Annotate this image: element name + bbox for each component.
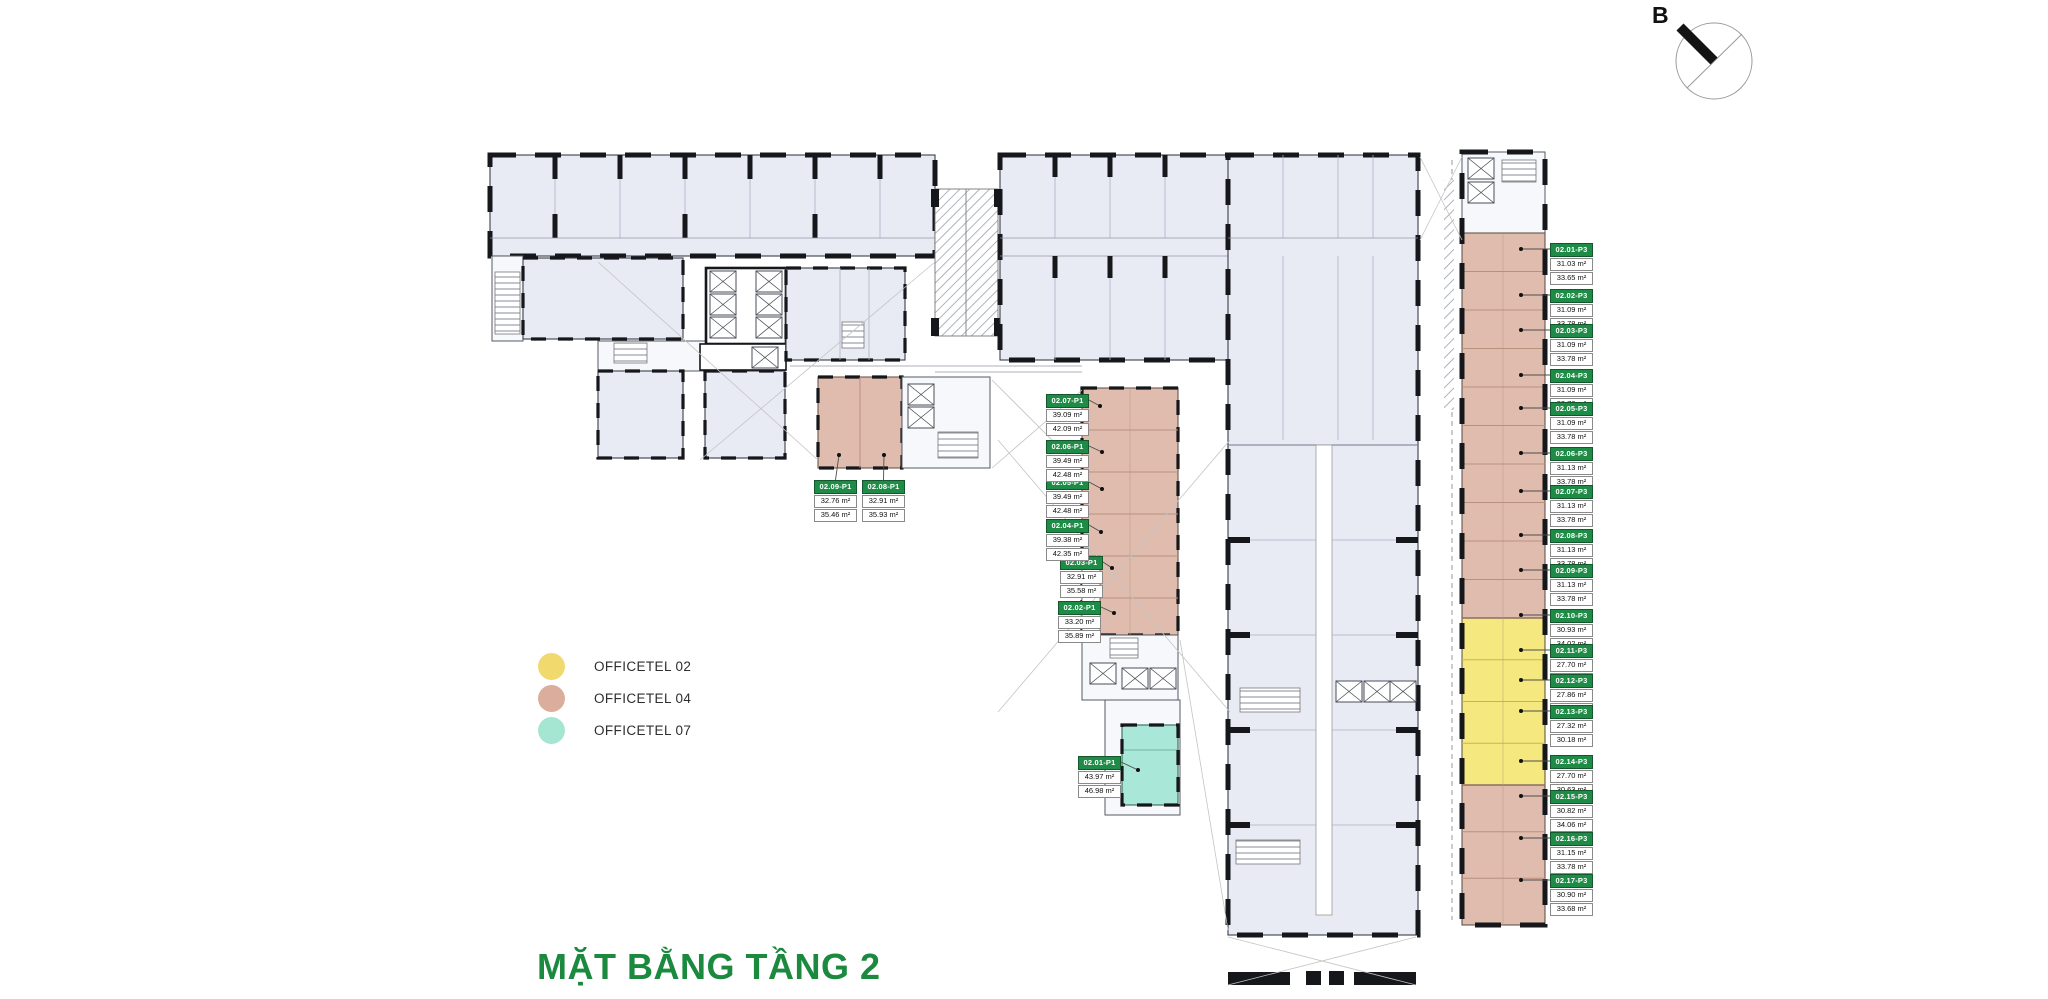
legend-color-dot <box>538 653 565 680</box>
unit-area1: 33.20 m² <box>1058 616 1101 629</box>
unit-area1: 30.93 m² <box>1550 624 1593 637</box>
unit-area1: 27.86 m² <box>1550 689 1593 702</box>
unit-area1: 39.49 m² <box>1046 455 1089 468</box>
unit-area1: 31.09 m² <box>1550 417 1593 430</box>
unit-id-badge: 02.17-P3 <box>1550 874 1593 888</box>
compass-north-label: B <box>1652 2 1669 28</box>
unit-label-02.08-P1: 02.08-P132.91 m²35.93 m² <box>862 480 905 522</box>
unit-id-badge: 02.07-P1 <box>1046 394 1089 408</box>
escalator-void <box>931 189 1002 336</box>
unit-area2: 46.98 m² <box>1078 785 1121 798</box>
unit-area2: 34.06 m² <box>1550 819 1593 832</box>
unit-id-badge: 02.04-P3 <box>1550 369 1593 383</box>
unit-area1: 32.76 m² <box>814 495 857 508</box>
unit-area2: 42.35 m² <box>1046 548 1089 561</box>
legend-color-dot <box>538 685 565 712</box>
legend-item-officetel-04: OFFICETEL 04 <box>538 685 691 712</box>
unit-id-badge: 02.09-P3 <box>1550 564 1593 578</box>
unit-label-02.17-P3: 02.17-P330.90 m²33.68 m² <box>1550 874 1593 916</box>
unit-area2: 33.78 m² <box>1550 431 1593 444</box>
unit-id-badge: 02.01-P3 <box>1550 243 1593 257</box>
unit-id-badge: 02.13-P3 <box>1550 705 1593 719</box>
unit-id-badge: 02.04-P1 <box>1046 519 1089 533</box>
unit-label-02.13-P3: 02.13-P327.32 m²30.18 m² <box>1550 705 1593 747</box>
building-mid-block <box>786 268 905 360</box>
unit-label-02.05-P1: 02.05-P139.49 m²42.48 m² <box>1046 476 1089 518</box>
building-tower <box>1228 155 1418 985</box>
unit-area1: 27.32 m² <box>1550 720 1593 733</box>
officetel-block-0809 <box>818 377 990 468</box>
unit-area1: 31.13 m² <box>1550 544 1593 557</box>
legend-color-dot <box>538 717 565 744</box>
building-upper-mid <box>1000 155 1230 360</box>
unit-area2: 33.78 m² <box>1550 593 1593 606</box>
unit-area2: 42.48 m² <box>1046 469 1089 482</box>
unit-id-badge: 02.09-P1 <box>814 480 857 494</box>
unit-area1: 30.90 m² <box>1550 889 1593 902</box>
unit-area2: 35.58 m² <box>1060 585 1103 598</box>
unit-area2: 33.68 m² <box>1550 903 1593 916</box>
unit-id-badge: 02.11-P3 <box>1550 644 1593 658</box>
legend: OFFICETEL 02OFFICETEL 04OFFICETEL 07 <box>538 653 691 744</box>
unit-label-02.07-P1: 02.07-P139.09 m²42.09 m² <box>1046 394 1089 436</box>
unit-area1: 27.70 m² <box>1550 770 1593 783</box>
unit-area1: 32.91 m² <box>862 495 905 508</box>
unit-id-badge: 02.06-P3 <box>1550 447 1593 461</box>
unit-area1: 31.15 m² <box>1550 847 1593 860</box>
legend-item-officetel-02: OFFICETEL 02 <box>538 653 691 680</box>
unit-id-badge: 02.10-P3 <box>1550 609 1593 623</box>
unit-area1: 43.97 m² <box>1078 771 1121 784</box>
unit-area2: 33.78 m² <box>1550 514 1593 527</box>
unit-label-02.09-P3: 02.09-P331.13 m²33.78 m² <box>1550 564 1593 606</box>
officetel-strip-p3 <box>1444 152 1545 925</box>
unit-label-02.02-P1: 02.02-P133.20 m²35.89 m² <box>1058 601 1101 643</box>
unit-label-02.01-P3: 02.01-P331.03 m²33.65 m² <box>1550 243 1593 285</box>
unit-area1: 31.09 m² <box>1550 339 1593 352</box>
unit-area2: 42.48 m² <box>1046 505 1089 518</box>
unit-area2: 42.09 m² <box>1046 423 1089 436</box>
unit-label-02.04-P1: 02.04-P139.38 m²42.35 m² <box>1046 519 1089 561</box>
unit-area1: 32.91 m² <box>1060 571 1103 584</box>
unit-id-badge: 02.06-P1 <box>1046 440 1089 454</box>
unit-label-02.06-P3: 02.06-P331.13 m²33.78 m² <box>1550 447 1593 489</box>
floorplan-page: B OFFICETEL 02OFFICETEL 04OFFICETEL 07 M… <box>0 0 2048 999</box>
unit-area1: 31.09 m² <box>1550 384 1593 397</box>
unit-id-badge: 02.14-P3 <box>1550 755 1593 769</box>
legend-label: OFFICETEL 04 <box>594 691 691 706</box>
unit-id-badge: 02.08-P1 <box>862 480 905 494</box>
unit-label-02.03-P1: 02.03-P132.91 m²35.58 m² <box>1060 556 1103 598</box>
compass-icon: B <box>1652 2 1752 99</box>
unit-area2: 35.93 m² <box>862 509 905 522</box>
unit-area1: 31.13 m² <box>1550 579 1593 592</box>
unit-area1: 39.09 m² <box>1046 409 1089 422</box>
unit-label-02.06-P1: 02.06-P139.49 m²42.48 m² <box>1046 440 1089 482</box>
elevator-core <box>700 268 786 370</box>
legend-label: OFFICETEL 02 <box>594 659 691 674</box>
unit-id-badge: 02.02-P3 <box>1550 289 1593 303</box>
unit-area2: 35.89 m² <box>1058 630 1101 643</box>
unit-id-badge: 02.08-P3 <box>1550 529 1593 543</box>
unit-id-badge: 02.03-P3 <box>1550 324 1593 338</box>
unit-area1: 31.09 m² <box>1550 304 1593 317</box>
unit-id-badge: 02.16-P3 <box>1550 832 1593 846</box>
officetel-strip-p1 <box>1082 388 1178 700</box>
unit-area1: 31.13 m² <box>1550 500 1593 513</box>
unit-area2: 33.65 m² <box>1550 272 1593 285</box>
unit-label-02.09-P1: 02.09-P132.76 m²35.46 m² <box>814 480 857 522</box>
unit-area2: 35.46 m² <box>814 509 857 522</box>
page-title: MẶT BẰNG TẦNG 2 <box>537 946 881 988</box>
unit-label-02.07-P3: 02.07-P331.13 m²33.78 m² <box>1550 485 1593 527</box>
unit-area1: 31.13 m² <box>1550 462 1593 475</box>
unit-id-badge: 02.05-P3 <box>1550 402 1593 416</box>
unit-id-badge: 02.07-P3 <box>1550 485 1593 499</box>
unit-area1: 39.49 m² <box>1046 491 1089 504</box>
legend-item-officetel-07: OFFICETEL 07 <box>538 717 691 744</box>
unit-label-02.01-P1: 02.01-P143.97 m²46.98 m² <box>1078 756 1121 798</box>
unit-label-02.03-P3: 02.03-P331.09 m²33.78 m² <box>1550 324 1593 366</box>
legend-label: OFFICETEL 07 <box>594 723 691 738</box>
unit-area2: 30.18 m² <box>1550 734 1593 747</box>
unit-area1: 30.82 m² <box>1550 805 1593 818</box>
building-left-wing <box>490 155 935 256</box>
unit-label-02.15-P3: 02.15-P330.82 m²34.06 m² <box>1550 790 1593 832</box>
unit-area2: 33.78 m² <box>1550 353 1593 366</box>
unit-id-badge: 02.01-P1 <box>1078 756 1121 770</box>
floorplan-drawing: B <box>0 0 2048 999</box>
unit-area1: 39.38 m² <box>1046 534 1089 547</box>
unit-label-02.05-P3: 02.05-P331.09 m²33.78 m² <box>1550 402 1593 444</box>
unit-area1: 27.70 m² <box>1550 659 1593 672</box>
unit-area1: 31.03 m² <box>1550 258 1593 271</box>
unit-id-badge: 02.15-P3 <box>1550 790 1593 804</box>
unit-id-badge: 02.12-P3 <box>1550 674 1593 688</box>
unit-label-02.16-P3: 02.16-P331.15 m²33.78 m² <box>1550 832 1593 874</box>
unit-id-badge: 02.02-P1 <box>1058 601 1101 615</box>
unit-area2: 33.78 m² <box>1550 861 1593 874</box>
